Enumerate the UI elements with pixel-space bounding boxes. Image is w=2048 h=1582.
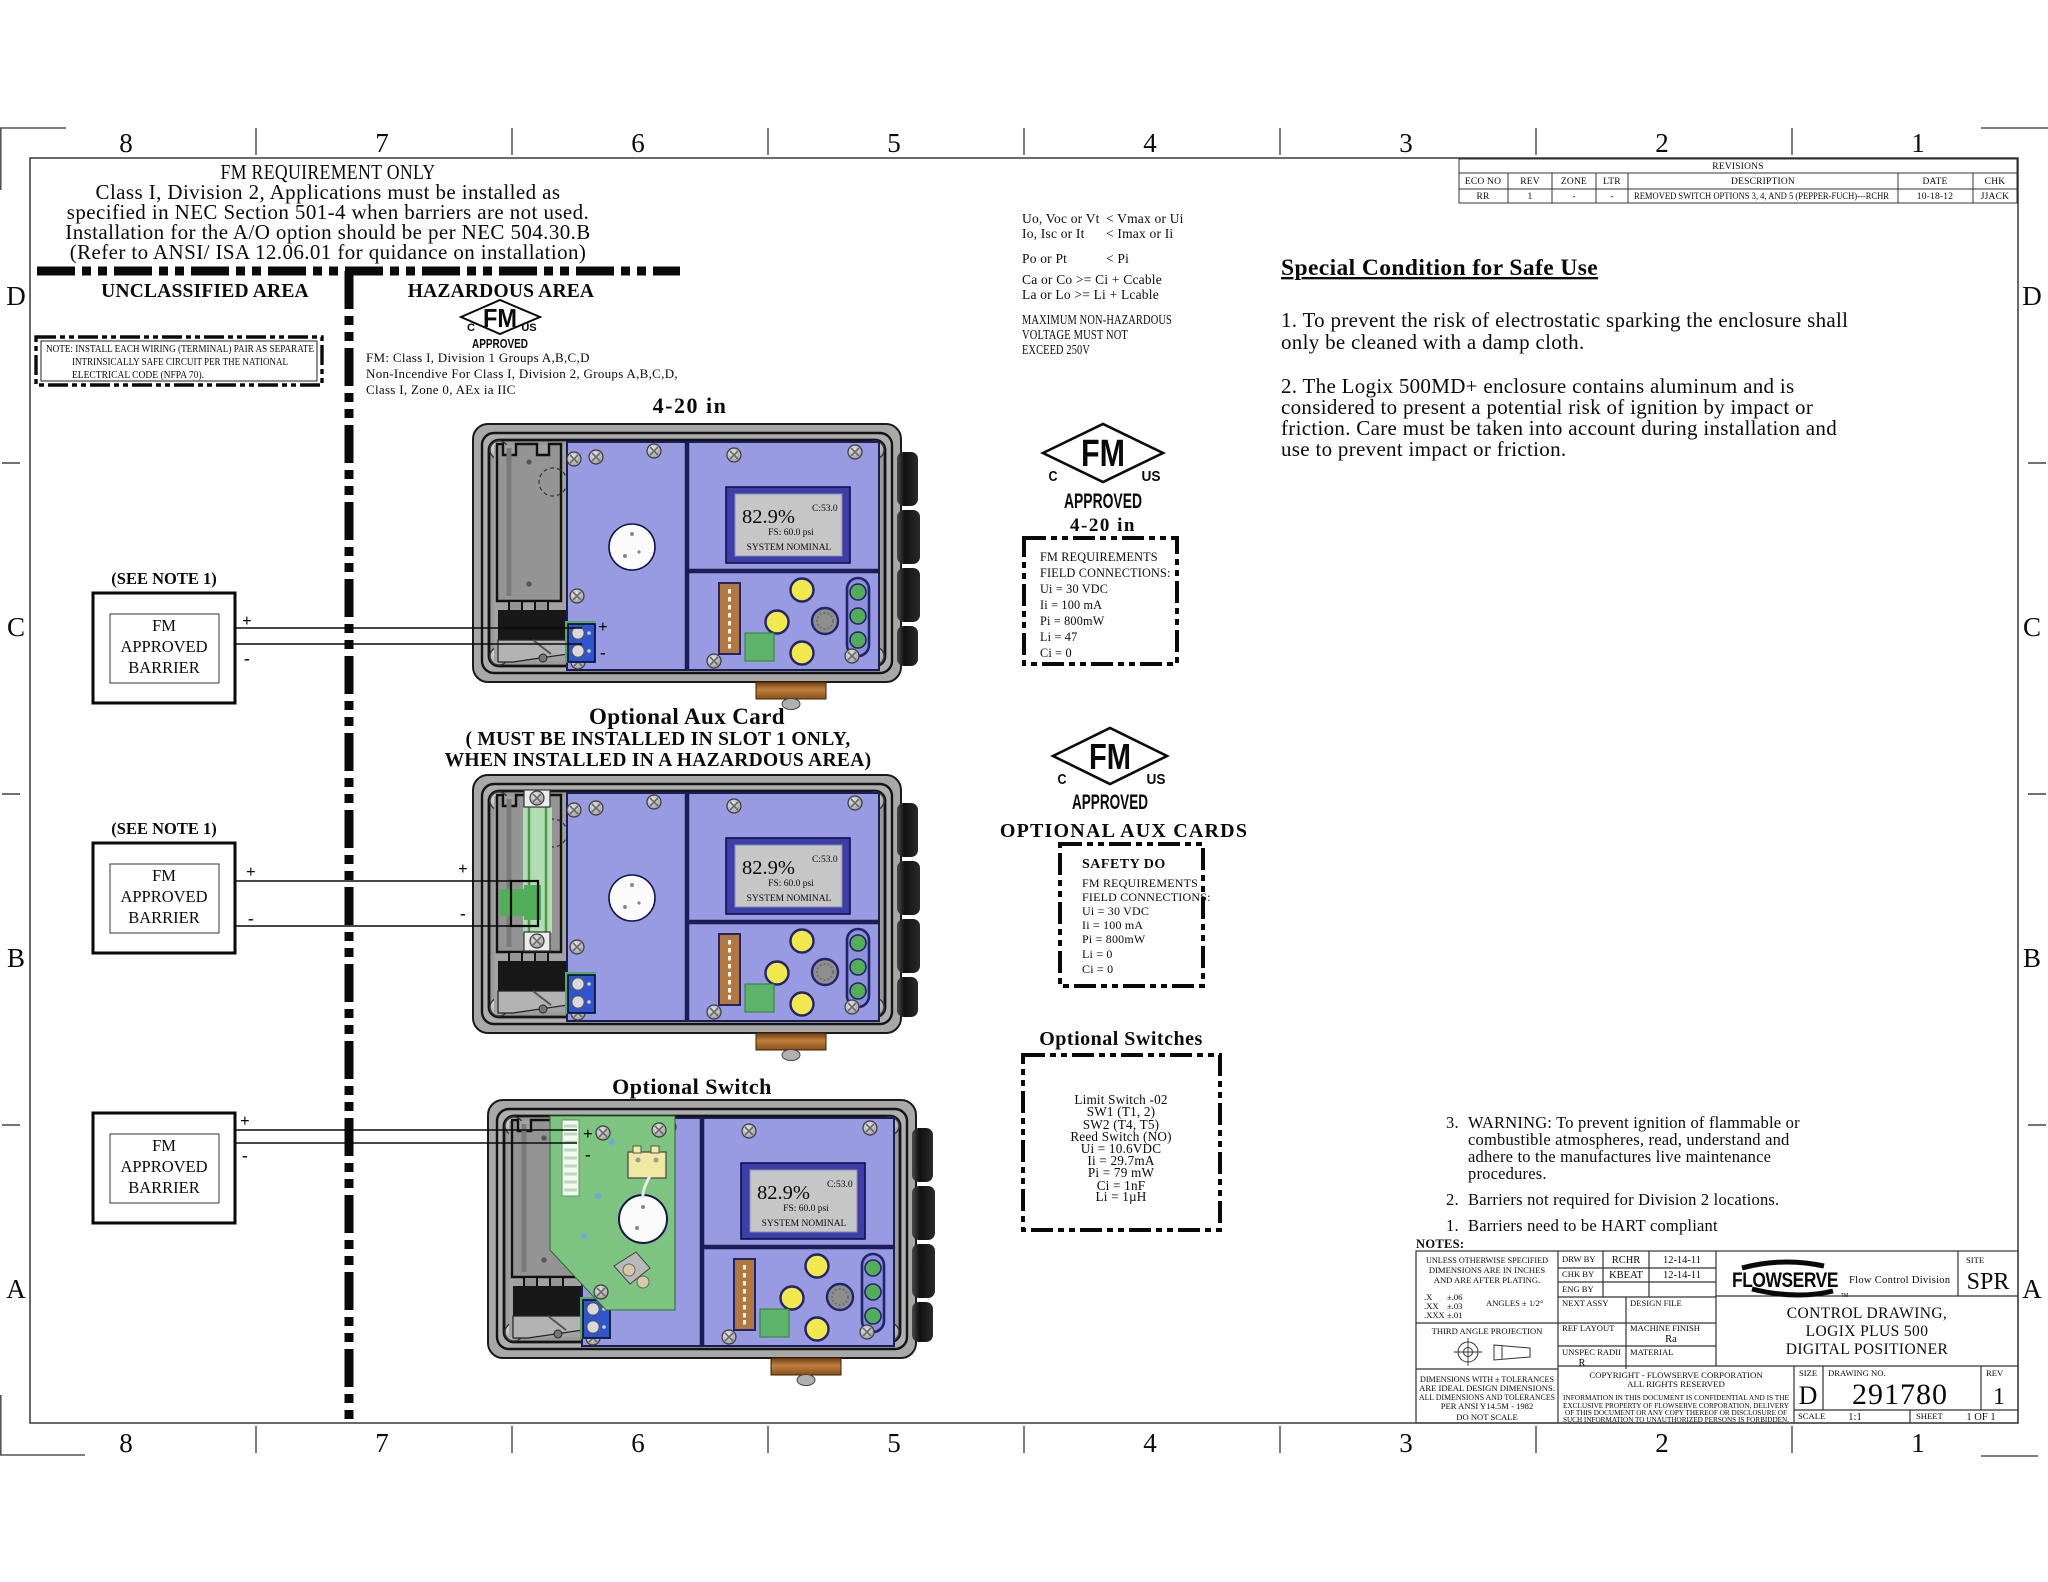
svg-text:FIELD CONNECTIONS:: FIELD CONNECTIONS: [1082,890,1211,904]
svg-text:JJACK: JJACK [1981,192,2009,202]
svg-text:-: - [248,909,254,928]
svg-text:FM: FM [1081,433,1125,475]
svg-text:Io, Isc or It: Io, Isc or It [1022,226,1085,241]
svg-text:-: - [1610,192,1613,202]
svg-text:+: + [583,1124,593,1143]
svg-text:Ci = 0: Ci = 0 [1082,962,1113,976]
svg-text:Ii = 100 mA: Ii = 100 mA [1082,918,1143,932]
svg-text:DIGITAL POSITIONER: DIGITAL POSITIONER [1786,1341,1949,1358]
svg-text:procedures.: procedures. [1468,1164,1547,1183]
svg-text:UNLESS OTHERWISE SPECIFIED: UNLESS OTHERWISE SPECIFIED [1426,1255,1548,1265]
svg-text:2.: 2. [1446,1190,1459,1209]
svg-text:BARRIER: BARRIER [128,908,200,927]
svg-text:UNCLASSIFIED AREA: UNCLASSIFIED AREA [101,281,309,302]
svg-text:DRAWING NO.: DRAWING NO. [1828,1368,1886,1378]
svg-text:UNSPEC RADII: UNSPEC RADII [1562,1347,1621,1357]
svg-text:FM REQUIREMENTS: FM REQUIREMENTS [1040,550,1158,564]
svg-text:REF LAYOUT: REF LAYOUT [1562,1323,1615,1333]
svg-text:< Imax or Ii: < Imax or Ii [1106,226,1173,241]
svg-text:VOLTAGE MUST NOT: VOLTAGE MUST NOT [1022,327,1128,342]
svg-text:A: A [6,1274,26,1304]
svg-text:FM: FM [483,303,517,333]
svg-text:C: C [1058,772,1067,788]
svg-text:(SEE NOTE 1): (SEE NOTE 1) [111,569,216,588]
svg-text:BARRIER: BARRIER [128,658,200,677]
svg-text:use to prevent impact or frict: use to prevent impact or friction. [1281,437,1566,461]
svg-text:Li = 47: Li = 47 [1040,630,1077,644]
svg-text:SAFETY DO: SAFETY DO [1082,857,1166,872]
svg-text:ENG BY: ENG BY [1562,1284,1594,1294]
svg-text:Optional Switches: Optional Switches [1039,1028,1203,1050]
svg-text:4-20 in: 4-20 in [653,393,728,418]
svg-text:1. To prevent the risk of elec: 1. To prevent the risk of electrostatic … [1281,308,1848,332]
svg-text:C: C [2023,612,2041,642]
svg-text:ECO NO: ECO NO [1465,177,1501,187]
svg-text:APPROVED: APPROVED [120,1157,207,1176]
svg-text:Optional Switch: Optional Switch [612,1074,772,1099]
svg-text:OPTIONAL AUX CARDS: OPTIONAL AUX CARDS [1000,820,1248,842]
svg-text:7: 7 [375,128,389,158]
svg-text:CHK BY: CHK BY [1562,1269,1594,1279]
svg-text:3: 3 [1399,128,1413,158]
svg-text:Optional Aux Card: Optional Aux Card [589,704,785,729]
svg-text:+: + [458,859,468,878]
svg-text:REVISIONS: REVISIONS [1712,162,1763,172]
svg-text:APPROVED: APPROVED [1064,490,1142,513]
svg-text:SIZE: SIZE [1799,1368,1817,1378]
svg-text:< Pi: < Pi [1106,251,1129,266]
svg-text:PER ANSI Y14.5M - 1982: PER ANSI Y14.5M - 1982 [1441,1401,1534,1411]
svg-text:5: 5 [887,128,901,158]
svg-text:US: US [521,322,536,334]
svg-text:APPROVED: APPROVED [120,637,207,656]
svg-text:Special Condition for Safe Use: Special Condition for Safe Use [1281,255,1598,281]
svg-text:Barriers not required for Divi: Barriers not required for Division 2 loc… [1468,1190,1779,1209]
svg-text:-: - [244,649,250,668]
svg-text:1: 1 [1911,1428,1925,1458]
svg-text:Flow Control Division: Flow Control Division [1849,1275,1951,1286]
svg-text:REV: REV [1986,1368,2004,1378]
svg-text:Pi = 800mW: Pi = 800mW [1082,932,1146,946]
svg-text:.XXX: .XXX [1424,1310,1446,1320]
svg-text:+: + [598,617,608,636]
svg-text:5: 5 [887,1428,901,1458]
svg-text:Barriers need to be HART compl: Barriers need to be HART compliant [1468,1216,1718,1235]
svg-text:Ci = 0: Ci = 0 [1040,646,1072,660]
svg-text:AND ARE AFTER PLATING.: AND ARE AFTER PLATING. [1434,1275,1540,1285]
svg-text:SHEET: SHEET [1916,1411,1943,1421]
svg-text:CHK: CHK [1985,177,2006,187]
svg-text:US: US [1142,469,1161,485]
svg-text:DRW BY: DRW BY [1562,1254,1596,1264]
svg-text:6: 6 [631,1428,645,1458]
svg-text:R: R [1578,1358,1585,1369]
svg-text:Pi = 800mW: Pi = 800mW [1040,614,1105,628]
svg-text:6: 6 [631,128,645,158]
svg-text:(SEE NOTE 1): (SEE NOTE 1) [111,819,216,838]
svg-text:< Vmax or Ui: < Vmax or Ui [1106,211,1184,226]
svg-text:291780: 291780 [1852,1378,1948,1411]
svg-text:Ui = 30 VDC: Ui = 30 VDC [1082,904,1149,918]
svg-text:-: - [242,1146,248,1165]
svg-text:2: 2 [1655,1428,1669,1458]
svg-text:+: + [246,862,256,881]
svg-text:12-14-11: 12-14-11 [1663,1270,1701,1281]
svg-text:INTRINSICALLY SAFE CIRCUIT PER: INTRINSICALLY SAFE CIRCUIT PER THE NATIO… [72,356,288,368]
svg-text:DESCRIPTION: DESCRIPTION [1731,177,1795,187]
svg-text:NOTES:: NOTES: [1416,1237,1464,1251]
svg-text:NOTE: INSTALL EACH WIRING (TER: NOTE: INSTALL EACH WIRING (TERMINAL) PAI… [46,343,314,355]
svg-text:8: 8 [119,128,133,158]
svg-text:C: C [1049,469,1058,485]
svg-text:1: 1 [1911,128,1925,158]
svg-text:MAXIMUM NON-HAZARDOUS: MAXIMUM NON-HAZARDOUS [1022,312,1172,327]
svg-text:LOGIX PLUS 500: LOGIX PLUS 500 [1806,1323,1929,1340]
svg-text:TM: TM [1841,1293,1848,1299]
svg-text:4: 4 [1143,1428,1157,1458]
svg-text:HAZARDOUS AREA: HAZARDOUS AREA [408,281,594,302]
svg-text:Li = 1µH: Li = 1µH [1095,1189,1146,1204]
svg-text:1: 1 [1993,1384,2005,1410]
svg-text:1:1: 1:1 [1848,1412,1861,1423]
svg-text:D: D [1799,1381,1818,1410]
svg-text:+: + [242,611,252,630]
svg-text:SUCH INFORMATION TO UNAUTHORIZ: SUCH INFORMATION TO UNAUTHORIZED PERSONS… [1563,1415,1789,1424]
svg-text:FM: Class I, Division 1 Groups: FM: Class I, Division 1 Groups A,B,C,D [366,350,590,365]
svg-text:LTR: LTR [1603,177,1621,187]
svg-text:C: C [467,322,475,334]
svg-text:3: 3 [1399,1428,1413,1458]
svg-text:APPROVED: APPROVED [120,887,207,906]
svg-text:La or Lo >= Li + Lcable: La or Lo >= Li + Lcable [1022,287,1159,302]
svg-text:EXCEED 250V: EXCEED 250V [1022,342,1090,357]
svg-text:(Refer to ANSI/ ISA 12.06.01 f: (Refer to ANSI/ ISA 12.06.01 for quidanc… [70,240,587,264]
svg-text:REV: REV [1520,177,1540,187]
svg-text:KBEAT: KBEAT [1609,1270,1643,1281]
svg-text:RCHR: RCHR [1612,1255,1641,1266]
svg-text:Ii = 100 mA: Ii = 100 mA [1040,598,1102,612]
svg-text:4: 4 [1143,128,1157,158]
svg-text:+: + [240,1111,250,1130]
svg-text:DATE: DATE [1922,177,1947,187]
svg-text:-: - [585,1145,591,1164]
svg-text:1: 1 [1528,192,1533,202]
svg-text:10-18-12: 10-18-12 [1917,192,1953,202]
svg-text:APPROVED: APPROVED [1072,791,1148,814]
svg-text:BARRIER: BARRIER [128,1178,200,1197]
svg-text:B: B [2023,943,2041,973]
svg-text:12-14-11: 12-14-11 [1663,1255,1701,1266]
svg-text:D: D [2022,281,2042,311]
svg-text:1 OF 1: 1 OF 1 [1966,1412,1995,1423]
svg-text:FM: FM [1089,736,1131,777]
svg-text:FM: FM [152,616,176,635]
svg-text:D: D [6,281,26,311]
svg-text:4-20 in: 4-20 in [1070,515,1136,536]
svg-text:CONTROL DRAWING,: CONTROL DRAWING, [1787,1305,1947,1322]
svg-text:DIMENSIONS ARE IN INCHES: DIMENSIONS ARE IN INCHES [1429,1265,1545,1275]
svg-text:Class I, Zone 0, AEx ia IIC: Class I, Zone 0, AEx ia IIC [366,382,516,397]
svg-text:RR: RR [1476,192,1490,202]
svg-text:SCALE: SCALE [1798,1411,1825,1421]
svg-text:Li = 0: Li = 0 [1082,947,1113,961]
svg-text:C: C [7,612,25,642]
svg-text:8: 8 [119,1428,133,1458]
svg-text:-: - [460,904,466,923]
svg-text:( MUST BE INSTALLED IN SLOT 1: ( MUST BE INSTALLED IN SLOT 1 ONLY, [465,729,850,750]
svg-text:ELECTRICAL CODE (NFPA 70).: ELECTRICAL CODE (NFPA 70). [72,369,204,381]
svg-text:Ca or Co >= Ci + Ccable: Ca or Co >= Ci + Ccable [1022,272,1162,287]
svg-text:MACHINE FINISH: MACHINE FINISH [1630,1323,1700,1333]
svg-text:US: US [1147,772,1166,788]
svg-text:±.01: ±.01 [1447,1310,1462,1320]
svg-text:Uo, Voc or Vt: Uo, Voc or Vt [1022,211,1100,226]
svg-text:MATERIAL: MATERIAL [1630,1347,1673,1357]
svg-text:ALL RIGHTS RESERVED: ALL RIGHTS RESERVED [1627,1379,1725,1389]
svg-text:FM: FM [152,866,176,885]
svg-text:SITE: SITE [1966,1255,1984,1265]
svg-text:Ui = 30 VDC: Ui = 30 VDC [1040,582,1108,596]
svg-text:ZONE: ZONE [1561,177,1587,187]
svg-text:DO NOT SCALE: DO NOT SCALE [1456,1412,1517,1422]
svg-text:FLOWSERVE: FLOWSERVE [1732,1269,1838,1292]
svg-text:REMOVED SWITCH OPTIONS 3, 4, A: REMOVED SWITCH OPTIONS 3, 4, AND 5 (PEPP… [1634,191,1890,202]
svg-text:-: - [600,643,606,662]
svg-text:DESIGN FILE: DESIGN FILE [1630,1298,1682,1308]
svg-text:1.: 1. [1446,1216,1459,1235]
svg-text:THIRD ANGLE PROJECTION: THIRD ANGLE PROJECTION [1432,1326,1544,1336]
svg-text:Non-Incendive For Class I, Div: Non-Incendive For Class I, Division 2, G… [366,366,678,381]
svg-text:ANGLES ± 1/2°: ANGLES ± 1/2° [1486,1298,1544,1308]
svg-text:FM: FM [152,1136,176,1155]
svg-text:FM REQUIREMENTS: FM REQUIREMENTS [1082,876,1198,890]
svg-text:-: - [1572,192,1575,202]
svg-text:NEXT ASSY: NEXT ASSY [1562,1298,1608,1308]
svg-text:A: A [2022,1274,2042,1304]
svg-text:APPROVED: APPROVED [472,336,528,351]
svg-text:SPR: SPR [1967,1269,2010,1295]
svg-text:FIELD CONNECTIONS:: FIELD CONNECTIONS: [1040,566,1171,580]
svg-text:2: 2 [1655,128,1669,158]
svg-text:B: B [7,943,25,973]
svg-text:Ra: Ra [1665,1334,1677,1345]
svg-text:only be cleaned with a damp cl: only be cleaned with a damp cloth. [1281,330,1585,354]
svg-text:7: 7 [375,1428,389,1458]
svg-text:Po or Pt: Po or Pt [1022,251,1067,266]
svg-text:WHEN INSTALLED IN A HAZARDOUS: WHEN INSTALLED IN A HAZARDOUS AREA) [445,750,872,771]
svg-text:3.: 3. [1446,1113,1459,1132]
